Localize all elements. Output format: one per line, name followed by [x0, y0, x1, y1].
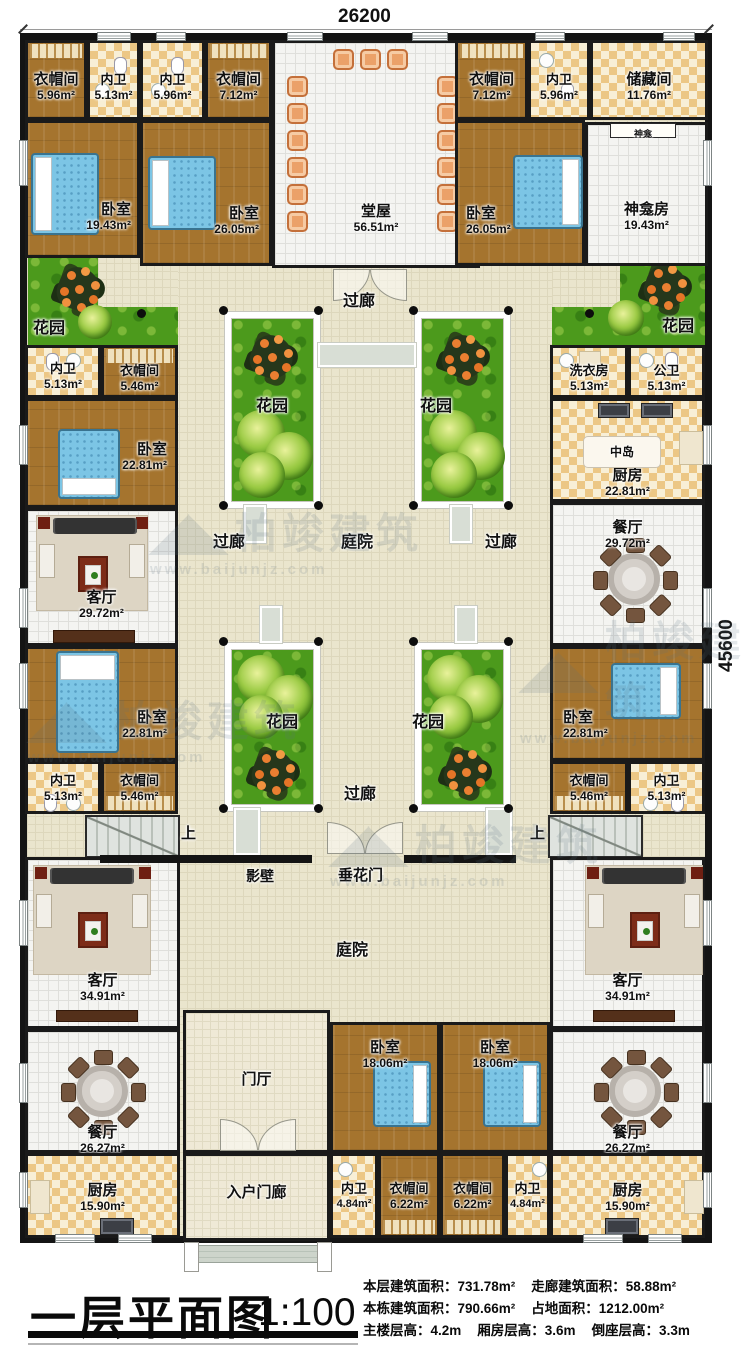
room-bedroom: 卧室19.43m²	[25, 120, 140, 258]
room-living: 客厅34.91m²	[25, 857, 180, 1029]
stat-floor-area: 本层建筑面积：731.78m²	[363, 1276, 515, 1298]
staircase-right	[548, 815, 643, 858]
room-cloakroom: 衣帽间7.12m²	[455, 40, 528, 120]
garden-label: 花园	[266, 708, 298, 732]
room-bathroom: 内卫5.96m²	[528, 40, 590, 120]
stat-building-area: 本栋建筑面积：790.66m²	[363, 1298, 515, 1320]
corridor-label: 过廊	[213, 528, 245, 552]
room-bedroom: 卧室22.81m²	[25, 646, 178, 761]
title-underline-thin	[28, 1343, 358, 1345]
garden-label: 花园	[420, 392, 452, 416]
room-bedroom: 卧室18.06m²	[330, 1022, 440, 1153]
room-bedroom: 卧室18.06m²	[440, 1022, 550, 1153]
floor-plan-canvas: 衣帽间5.96m² 内卫5.13m² 内卫5.96m² 衣帽间7.12m² 卧室…	[0, 0, 750, 1358]
plan-title: 一层平面图	[30, 1282, 275, 1348]
room-storage: 储藏间11.76m²	[590, 40, 708, 120]
garden-label: 花园	[256, 392, 288, 416]
room-dining: 餐厅26.27m²	[550, 1029, 705, 1153]
staircase-left	[85, 815, 180, 858]
stairs-up-label: 上	[530, 822, 545, 843]
courtyard-label: 庭院	[341, 528, 373, 552]
dimension-width: 26200	[338, 6, 391, 28]
stat-main-height: 主楼层高：4.2m	[363, 1320, 461, 1342]
room-main-hall: 堂屋56.51m²	[272, 40, 480, 268]
corridor-label: 过廊	[485, 528, 517, 552]
garden-label: 花园	[412, 708, 444, 732]
room-bathroom: 内卫4.84m²	[330, 1153, 378, 1238]
room-living: 客厅34.91m²	[550, 857, 705, 1029]
double-door-festoon-gate	[327, 822, 403, 854]
garden-label: 花园	[33, 314, 65, 338]
double-door-entry	[220, 1119, 296, 1151]
room-entry-porch: 入户门廊	[183, 1153, 330, 1241]
shrine-niche-label: 神龛	[634, 129, 652, 139]
porch-pillar	[184, 1242, 199, 1272]
room-bathroom: 内卫5.13m²	[25, 345, 101, 398]
room-bedroom: 卧室26.05m²	[455, 120, 585, 266]
room-kitchen: 厨房15.90m²	[550, 1153, 705, 1238]
walkway	[455, 606, 477, 643]
stat-wing-height: 厢房层高：3.6m	[477, 1320, 575, 1342]
walkway	[234, 808, 260, 855]
room-laundry: 洗衣房5.13m²	[550, 345, 628, 398]
room-dining: 餐厅26.27m²	[25, 1029, 180, 1153]
room-shrine: 神龛房19.43m²	[585, 122, 708, 266]
stat-land-area: 占地面积：1212.00m²	[531, 1298, 664, 1320]
kitchen-island-label: 中岛	[584, 437, 660, 467]
walkway	[244, 505, 266, 543]
walkway	[260, 606, 282, 643]
room-bedroom: 卧室22.81m²	[550, 646, 705, 761]
room-bathroom: 内卫4.84m²	[505, 1153, 550, 1238]
screen-wall	[100, 855, 312, 863]
bush-icon	[78, 305, 112, 339]
corridor-label: 过廊	[343, 287, 375, 311]
room-cloakroom: 衣帽间6.22m²	[378, 1153, 440, 1238]
kitchen-island: 中岛	[583, 436, 661, 468]
corridor-label: 过廊	[344, 780, 376, 804]
dimension-height: 45600	[716, 619, 738, 672]
room-bathroom: 内卫5.13m²	[25, 761, 101, 814]
garden-label: 花园	[662, 312, 694, 336]
bush-icon	[608, 300, 644, 336]
room-public-bathroom: 公卫5.13m²	[628, 345, 705, 398]
stat-corridor-area: 走廊建筑面积：58.88m²	[531, 1276, 676, 1298]
room-kitchen: 厨房15.90m²	[25, 1153, 180, 1238]
walkway	[486, 808, 512, 855]
entry-steps	[198, 1245, 318, 1263]
room-cloakroom: 衣帽间5.46m²	[101, 345, 178, 398]
stat-rear-height: 倒座层高：3.3m	[592, 1320, 690, 1342]
room-cloakroom: 衣帽间5.46m²	[101, 761, 178, 814]
room-bedroom: 卧室22.81m²	[25, 398, 178, 508]
room-cloakroom: 衣帽间5.46m²	[550, 761, 628, 814]
courtyard-label: 庭院	[336, 936, 368, 960]
screen-wall-label: 影壁	[246, 866, 274, 886]
shrine-niche: 神龛	[610, 123, 676, 138]
walkway-bridge	[318, 343, 416, 367]
room-bathroom: 内卫5.13m²	[87, 40, 140, 120]
room-cloakroom: 衣帽间6.22m²	[440, 1153, 505, 1238]
room-bathroom: 内卫5.13m²	[628, 761, 705, 814]
room-bedroom: 卧室26.05m²	[140, 120, 272, 266]
plan-scale: 1:100	[258, 1291, 356, 1335]
walkway	[450, 505, 472, 543]
room-bathroom: 内卫5.96m²	[140, 40, 205, 120]
screen-wall	[404, 855, 516, 863]
room-dining: 餐厅29.72m²	[550, 502, 705, 646]
room-living: 客厅29.72m²	[25, 508, 178, 646]
title-underline	[28, 1331, 358, 1338]
area-statistics: 本层建筑面积：731.78m² 走廊建筑面积：58.88m² 本栋建筑面积：79…	[363, 1276, 748, 1342]
stairs-up-label: 上	[181, 822, 196, 843]
room-cloakroom: 衣帽间7.12m²	[205, 40, 272, 120]
room-cloakroom: 衣帽间5.96m²	[25, 40, 87, 120]
festoon-gate-label: 垂花门	[338, 864, 383, 885]
porch-pillar	[317, 1242, 332, 1272]
